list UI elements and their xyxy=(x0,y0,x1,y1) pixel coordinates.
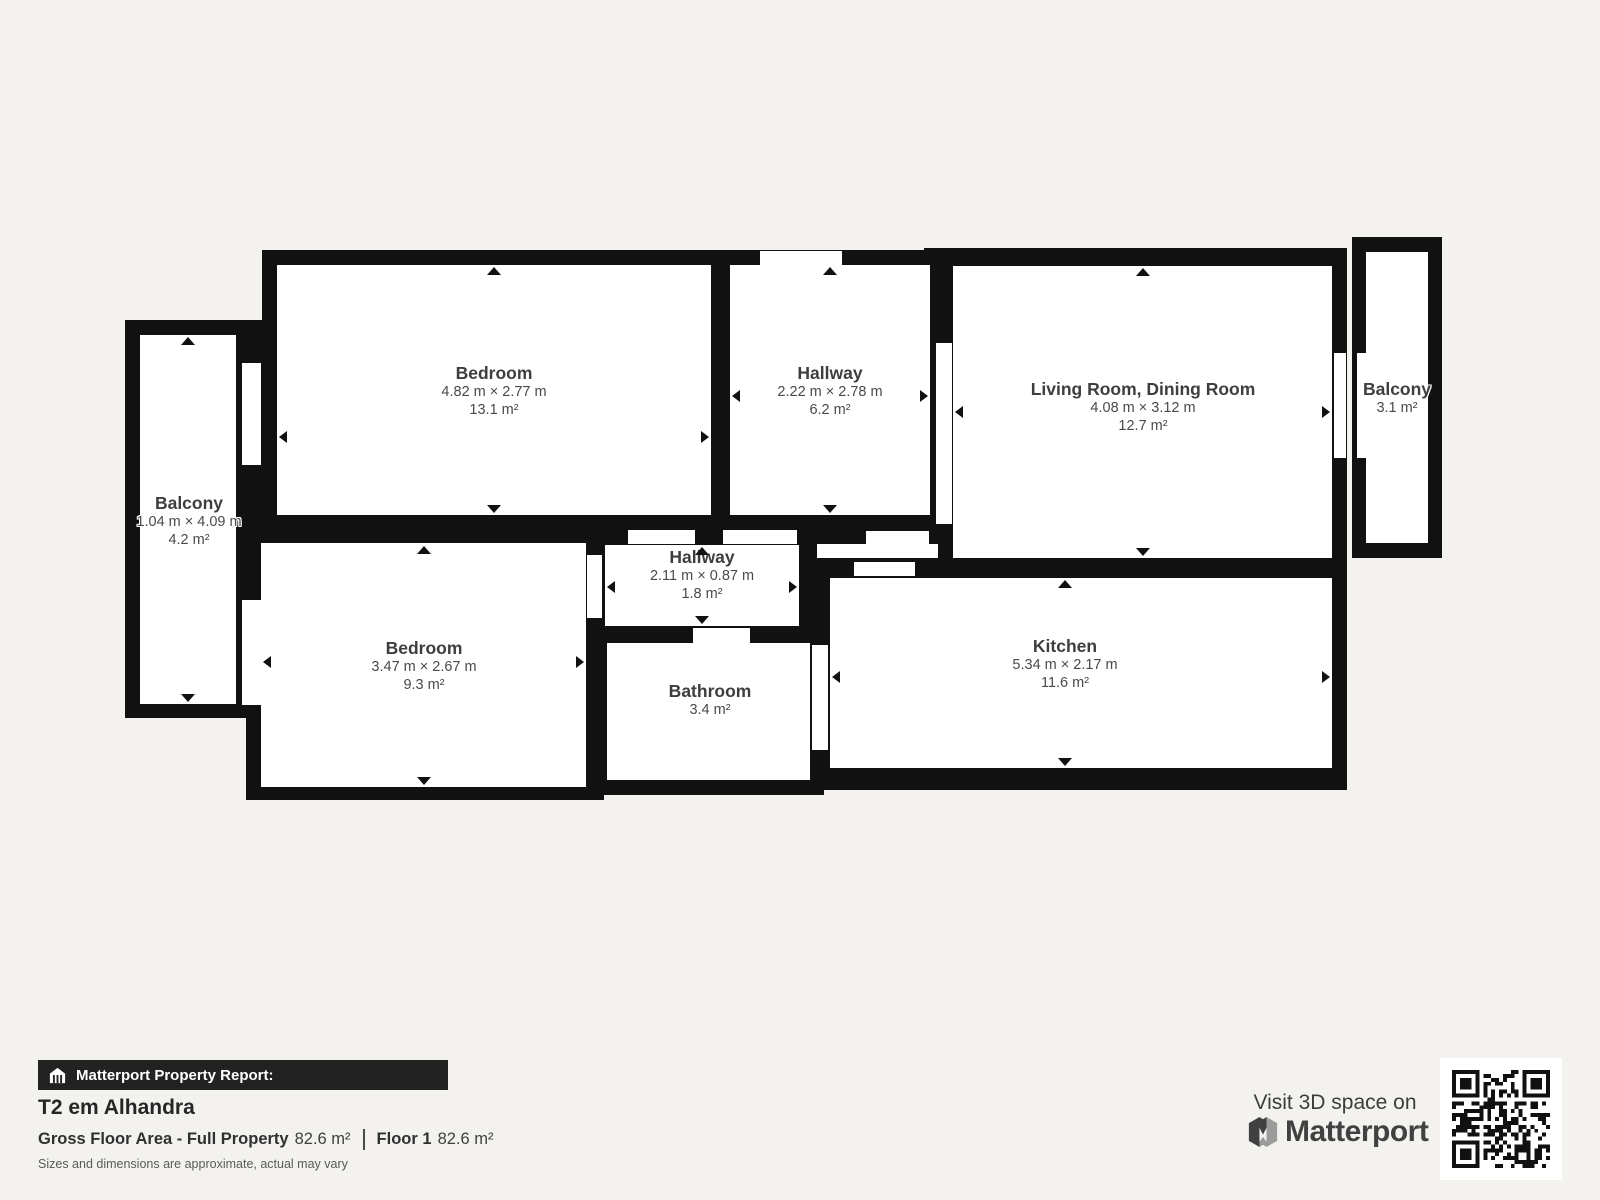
door-opening xyxy=(242,600,261,705)
measure-arrow-down-icon xyxy=(1136,548,1150,556)
measure-arrow-up-icon xyxy=(695,547,709,555)
room-dimensions: 2.22 m × 2.78 m xyxy=(777,383,882,401)
room-dimensions: 2.11 m × 0.87 m xyxy=(650,567,754,585)
room-area: 11.6 m² xyxy=(1012,674,1117,692)
measure-arrow-right-icon xyxy=(789,581,797,593)
measure-arrow-up-icon xyxy=(487,267,501,275)
room-dimensions: 5.34 m × 2.17 m xyxy=(1012,656,1117,674)
floor-value: 82.6 m² xyxy=(438,1130,494,1149)
divider xyxy=(363,1129,365,1150)
room-label-balcony-right: Balcony 3.1 m² xyxy=(1363,379,1431,417)
room-area: 6.2 m² xyxy=(777,401,882,419)
measure-arrow-down-icon xyxy=(823,505,837,513)
room-name: Bedroom xyxy=(441,363,546,383)
room-area: 4.2 m² xyxy=(129,531,248,549)
door-opening xyxy=(628,530,695,544)
measure-arrow-right-icon xyxy=(701,431,709,443)
room-name: Kitchen xyxy=(1012,636,1117,656)
measure-arrow-down-icon xyxy=(417,777,431,785)
room-area: 3.4 m² xyxy=(669,701,752,719)
room-name: Bedroom xyxy=(371,638,476,658)
room-area: 9.3 m² xyxy=(371,676,476,694)
measure-arrow-left-icon xyxy=(732,390,740,402)
door-opening xyxy=(817,544,938,558)
door-opening xyxy=(587,555,602,618)
room-label-bedroom-1: Bedroom 4.82 m × 2.77 m 13.1 m² xyxy=(441,363,546,419)
room-area: 13.1 m² xyxy=(441,401,546,419)
area-info: Gross Floor Area - Full Property 82.6 m²… xyxy=(38,1129,494,1150)
measure-arrow-right-icon xyxy=(1322,671,1330,683)
measure-arrow-right-icon xyxy=(920,390,928,402)
building-icon xyxy=(48,1066,67,1085)
room-dimensions: 4.08 m × 3.12 m xyxy=(1031,399,1256,417)
room-label-bathroom: Bathroom 3.4 m² xyxy=(669,681,752,719)
floor-plan: Bedroom 4.82 m × 2.77 m 13.1 m² Hallway … xyxy=(0,0,1600,1200)
door-opening xyxy=(693,628,750,643)
measure-arrow-up-icon xyxy=(1058,580,1072,588)
room-name: Bathroom xyxy=(669,681,752,701)
door-opening xyxy=(854,562,915,576)
room-label-balcony-left: Balcony 1.04 m × 4.09 m 4.2 m² xyxy=(129,493,248,549)
door-opening xyxy=(866,531,929,544)
room-name: Balcony xyxy=(129,493,248,513)
property-title: T2 em Alhandra xyxy=(38,1096,195,1120)
matterport-brand: Matterport xyxy=(1248,1115,1428,1149)
room-area: 1.8 m² xyxy=(650,585,754,603)
matterport-logo-icon xyxy=(1248,1115,1278,1149)
room-label-living-dining: Living Room, Dining Room 4.08 m × 3.12 m… xyxy=(1031,379,1256,435)
door-opening xyxy=(1334,353,1346,458)
measure-arrow-up-icon xyxy=(823,267,837,275)
room-name: Balcony xyxy=(1363,379,1431,399)
room-label-bedroom-2: Bedroom 3.47 m × 2.67 m 9.3 m² xyxy=(371,638,476,694)
report-bar: Matterport Property Report: xyxy=(38,1060,448,1090)
measure-arrow-down-icon xyxy=(695,616,709,624)
room-name: Hallway xyxy=(777,363,882,383)
measure-arrow-down-icon xyxy=(487,505,501,513)
room-dimensions: 4.82 m × 2.77 m xyxy=(441,383,546,401)
measure-arrow-right-icon xyxy=(1322,406,1330,418)
measure-arrow-up-icon xyxy=(417,546,431,554)
room-name: Living Room, Dining Room xyxy=(1031,379,1256,399)
room-dimensions-row: 1.04 m × 4.09 m xyxy=(129,513,248,531)
measure-arrow-left-icon xyxy=(279,431,287,443)
visit-3d-space-text: Visit 3D space on xyxy=(1247,1091,1423,1115)
door-opening xyxy=(936,343,952,524)
room-label-kitchen: Kitchen 5.34 m × 2.17 m 11.6 m² xyxy=(1012,636,1117,692)
matterport-wordmark: Matterport xyxy=(1285,1115,1428,1149)
door-opening xyxy=(760,251,842,266)
measure-arrow-down-icon xyxy=(181,694,195,702)
disclaimer-text: Sizes and dimensions are approximate, ac… xyxy=(38,1157,348,1171)
measure-arrow-left-icon xyxy=(263,656,271,668)
room-area: 3.1 m² xyxy=(1363,399,1431,417)
door-opening xyxy=(242,363,261,465)
measure-arrow-up-icon xyxy=(181,337,195,345)
room-label-hallway-small: Hallway 2.11 m × 0.87 m 1.8 m² xyxy=(650,547,754,603)
room-label-hallway-top: Hallway 2.22 m × 2.78 m 6.2 m² xyxy=(777,363,882,419)
door-opening xyxy=(812,645,828,750)
gross-floor-area-value: 82.6 m² xyxy=(295,1130,351,1149)
measure-arrow-down-icon xyxy=(1058,758,1072,766)
room-area: 12.7 m² xyxy=(1031,417,1256,435)
report-bar-label: Matterport Property Report: xyxy=(76,1067,274,1084)
qr-code xyxy=(1440,1058,1562,1180)
measure-arrow-right-icon xyxy=(244,518,249,526)
gross-floor-area-label: Gross Floor Area - Full Property xyxy=(38,1130,289,1149)
measure-arrow-left-icon xyxy=(129,518,134,526)
door-opening xyxy=(723,530,797,544)
floor-label: Floor 1 xyxy=(377,1130,432,1149)
measure-arrow-up-icon xyxy=(1136,268,1150,276)
measure-arrow-left-icon xyxy=(832,671,840,683)
measure-arrow-left-icon xyxy=(955,406,963,418)
room-dimensions: 3.47 m × 2.67 m xyxy=(371,658,476,676)
measure-arrow-right-icon xyxy=(576,656,584,668)
room-dimensions: 1.04 m × 4.09 m xyxy=(136,513,241,531)
measure-arrow-left-icon xyxy=(607,581,615,593)
